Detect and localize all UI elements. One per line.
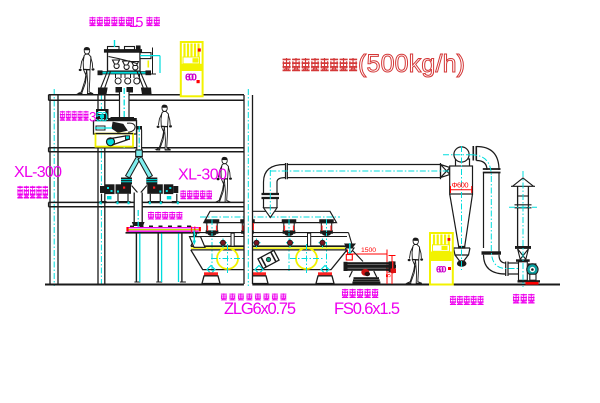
svg-text:50: 50 [96,110,109,125]
svg-text:XL-300: XL-300 [14,164,62,181]
svg-text:(500kg/h): (500kg/h) [358,50,465,78]
svg-text:1500: 1500 [361,247,376,254]
svg-text:XL-300: XL-300 [178,167,227,184]
svg-text:600: 600 [436,265,447,276]
svg-text:600: 600 [185,72,197,84]
svg-text:FS0.6x1.5: FS0.6x1.5 [334,300,400,318]
svg-text:ZLG6x0.75: ZLG6x0.75 [224,300,296,318]
svg-text:Φ600: Φ600 [452,181,469,190]
svg-text:1.5: 1.5 [129,15,144,31]
